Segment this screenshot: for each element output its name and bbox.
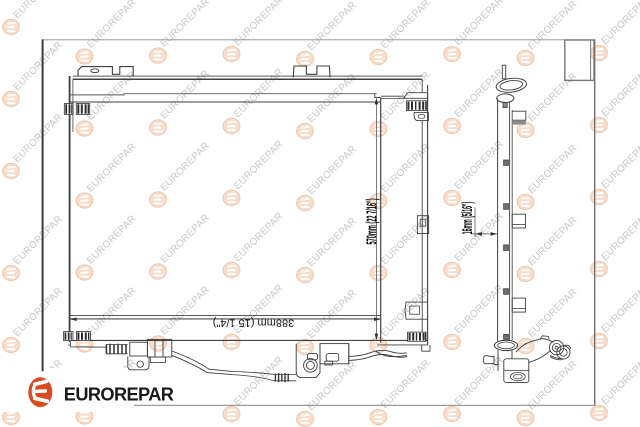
svg-text:388mm (15 1/4"): 388mm (15 1/4") xyxy=(213,317,295,329)
svg-text:EUROREPAR: EUROREPAR xyxy=(64,384,174,404)
svg-text:16mm (5/16"): 16mm (5/16") xyxy=(460,202,476,234)
svg-text:570mm (22 7/16"): 570mm (22 7/16") xyxy=(365,198,381,244)
